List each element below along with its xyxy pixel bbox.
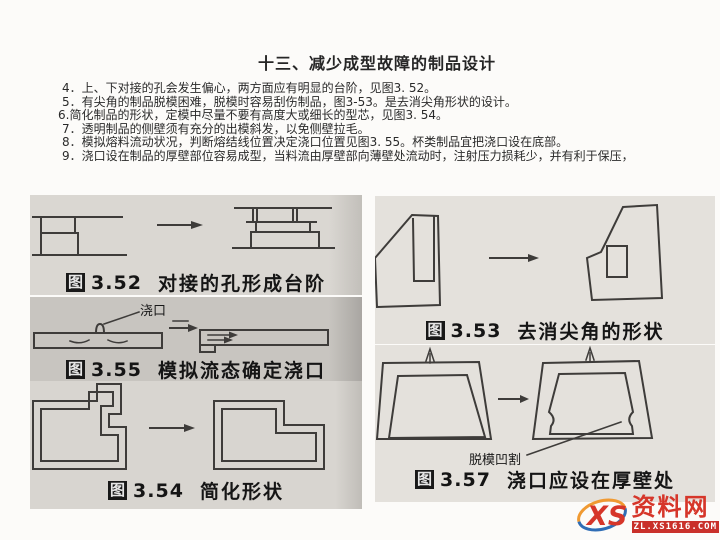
- fig353-diagram: [375, 196, 715, 314]
- watermark-logo-text: XS: [585, 501, 627, 532]
- body-line: 6.简化制品的形状，定模中尽量不要有高度大或细长的型芯，见图3. 54。: [58, 109, 634, 123]
- body-line: 4．上、下对接的孔会发生偏心，两方面应有明显的台阶，见图3. 52。: [58, 82, 634, 96]
- body-line: 8．模拟熔料流动状况，判断熔结线位置决定浇口位置见图3. 55。杯类制品宜把浇口…: [58, 136, 634, 150]
- fig-tag: 图: [66, 360, 85, 379]
- watermark-site-url: ZL.XS1616.COM: [632, 521, 719, 533]
- fig353-before-slot: [413, 217, 434, 281]
- fig355-left-bar: [34, 333, 162, 348]
- fig354-after-outer: [214, 401, 324, 469]
- fig-number: 3.52: [91, 272, 142, 294]
- fig353-after-outline: [587, 205, 662, 300]
- fig-number: 3.53: [451, 320, 502, 342]
- body-paragraphs: 4．上、下对接的孔会发生偏心，两方面应有明显的台阶，见图3. 52。 5．有尖角…: [58, 82, 634, 163]
- fig354-after-inner: [222, 409, 316, 461]
- fig-number: 3.55: [91, 359, 142, 381]
- fig-caption-text: 浇口应设在厚壁处: [507, 470, 675, 492]
- fig355-flow-head-2: [224, 337, 233, 344]
- fig-number: 3.54: [133, 480, 184, 502]
- fig-number: 3.57: [440, 469, 491, 491]
- body-line: 7．透明制品的侧壁须有充分的出模斜发，以免侧壁拉毛。: [58, 123, 634, 137]
- figure-panel-3-52: 图3.52对接的孔形成台阶: [30, 195, 362, 295]
- fig355-flow-arc-right: [108, 340, 127, 343]
- fig355-gate-nub: [96, 324, 104, 333]
- fig-caption-text: 简化形状: [200, 481, 284, 503]
- fig352-before-shape: [33, 217, 126, 255]
- fig357-after-gate-spike: [586, 348, 594, 362]
- fig357-after-inner: [549, 373, 633, 434]
- figure-panel-3-57: 脱模凹割 图3.57浇口应设在厚壁处: [375, 345, 715, 502]
- fig354-before-inner: [41, 392, 118, 461]
- fig357-arrowhead: [520, 395, 529, 403]
- fig352-arrowhead: [191, 221, 203, 229]
- fig354-arrowhead: [184, 424, 195, 432]
- fig355-flow-arc-left: [70, 340, 89, 343]
- fig357-before-gate-spike: [426, 349, 434, 363]
- page-title: 十三、减少成型故障的制品设计: [0, 50, 720, 74]
- fig-tag: 图: [66, 273, 85, 292]
- figure-panel-3-55: 浇口 图3.55模拟流态确定浇口: [30, 297, 362, 381]
- fig353-before-outline: [375, 215, 440, 307]
- watermark-logo-icon: XS: [574, 491, 630, 537]
- fig357-before-inner: [389, 375, 485, 438]
- watermark-text-block: 资料网 ZL.XS1616.COM: [632, 495, 719, 533]
- figure-panel-3-54: 图3.54简化形状: [30, 381, 362, 509]
- fig357-diagram: [375, 345, 715, 465]
- fig-tag: 图: [415, 470, 434, 489]
- body-line: 5．有尖角的制品脱模困难，脱模时容易刮伤制品，图3-53。是去消尖角形状的设计。: [58, 96, 634, 110]
- gate-annotation: 浇口: [140, 300, 166, 319]
- fig-tag: 图: [426, 321, 445, 340]
- fig354-diagram: [30, 381, 362, 475]
- fig355-diagram: [30, 297, 362, 355]
- figure-caption-3-52: 图3.52对接的孔形成台阶: [30, 269, 362, 296]
- fig353-arrowhead: [528, 254, 539, 262]
- watermark-site-name: 资料网: [632, 495, 719, 520]
- fig355-leader-line: [104, 312, 139, 324]
- figure-caption-3-55: 图3.55模拟流态确定浇口: [30, 356, 362, 383]
- fig-caption-text: 去消尖角的形状: [517, 321, 664, 343]
- body-line: 9．浇口设在制品的厚壁部位容易成型，当料流由厚壁部向薄壁处流动时，注射压力损耗少…: [58, 150, 634, 164]
- fig353-after-slot: [607, 246, 627, 277]
- figure-caption-3-54: 图3.54简化形状: [30, 477, 362, 504]
- fig355-flow-head-1: [229, 332, 238, 339]
- fig352-diagram: [30, 195, 362, 269]
- fig-caption-text: 对接的孔形成台阶: [158, 273, 326, 295]
- watermark: XS 资料网 ZL.XS1616.COM: [574, 491, 719, 537]
- fig355-right-bar: [200, 330, 328, 352]
- figure-panel-3-53: 图3.53去消尖角的形状: [375, 196, 715, 344]
- figure-caption-3-53: 图3.53去消尖角的形状: [375, 317, 715, 344]
- fig-tag: 图: [108, 481, 127, 500]
- fig355-arrowhead: [188, 324, 198, 332]
- fig352-after-shape: [233, 208, 334, 248]
- figure-caption-3-57: 图3.57浇口应设在厚壁处: [375, 466, 715, 493]
- fig-caption-text: 模拟流态确定浇口: [158, 360, 326, 382]
